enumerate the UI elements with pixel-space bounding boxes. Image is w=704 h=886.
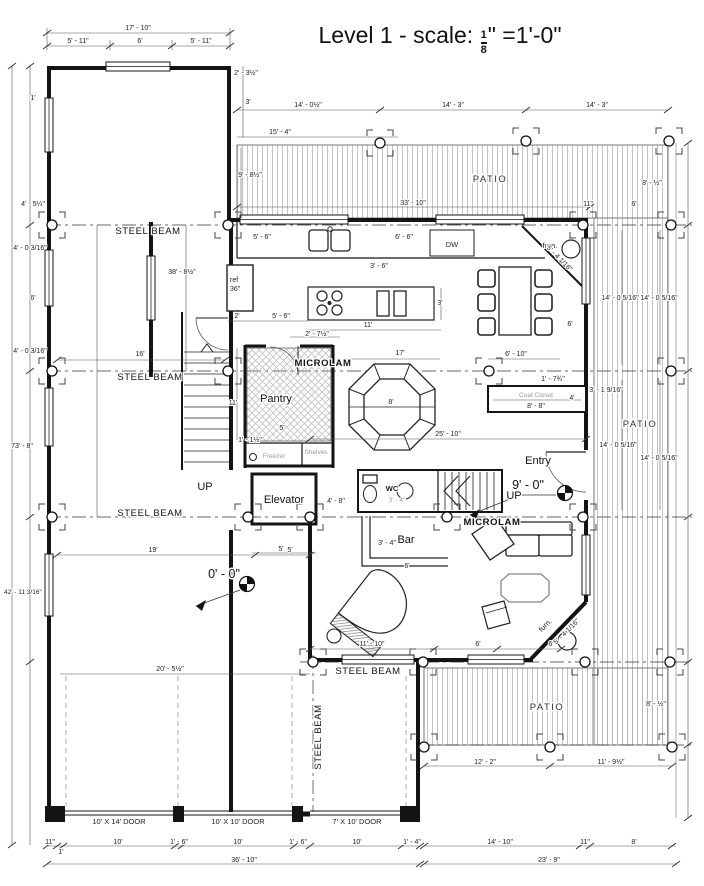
dim-label: 6'	[631, 201, 636, 208]
dim-label: 4' - 8"	[327, 498, 345, 505]
scale-fraction: 18	[481, 30, 487, 56]
spot-elevation-main-label: 0' - 0"	[208, 567, 240, 581]
leader-arrow	[196, 600, 206, 611]
toilet	[364, 486, 377, 503]
dim-label: 14' - 0 5/16"	[640, 295, 678, 302]
stair-door-swing	[196, 318, 228, 350]
kitchen	[227, 222, 545, 320]
dim-label: 14' - 0 5/16"	[640, 455, 678, 462]
stairs-left	[182, 312, 229, 470]
microlam-label-mid: MICROLAM	[463, 517, 520, 528]
island-cabinet	[377, 291, 389, 316]
dim-label: 14' - 3"	[442, 102, 464, 109]
room-label-wc: WC	[386, 484, 399, 493]
dim-label: 8' - 8"	[527, 403, 545, 410]
floor-plan-canvas: PATIO PATIO PATIO Pantry Freezer Shelves…	[0, 0, 704, 886]
island-cabinet	[394, 291, 406, 316]
steel-beam-label-4: STEEL BEAM	[335, 666, 400, 677]
dim-label: 16'	[135, 351, 144, 358]
dim-label: 42' - 11 3/16"	[4, 589, 42, 596]
dim-label: 4' - 5¼"	[21, 201, 45, 208]
faucet-icon	[328, 227, 332, 231]
dim-label: 9' - 8½"	[238, 171, 262, 179]
dim-label: 8' - ½"	[642, 179, 662, 187]
dim-label: 25' - 10"	[435, 431, 461, 438]
dim-label: 23' - 9"	[538, 857, 560, 864]
dim-label: 10'	[352, 839, 361, 846]
dim-label: 1'	[30, 95, 35, 102]
dim-label: 4'	[569, 395, 574, 402]
dim-label: 36' - 10"	[231, 857, 257, 864]
refrigerator-label-1: ref	[230, 277, 238, 284]
dim-label: 4' - 0 3/16"	[13, 245, 47, 252]
room-label-elevator: Elevator	[264, 494, 305, 506]
dim-label: 6'	[30, 295, 35, 302]
dim-label: 14' - 0½"	[294, 101, 322, 109]
dim-label: 1'	[58, 849, 63, 856]
fraction-numerator: 1	[481, 30, 487, 41]
dim-label: 11"	[45, 839, 55, 846]
octagon-game-table	[349, 364, 435, 450]
dim-label: 3'	[437, 300, 442, 307]
dim-label: 11"	[580, 839, 590, 846]
dim-label: 11'	[229, 400, 238, 407]
dim-label: 6'	[137, 38, 142, 45]
furnace-label-bottom: furn.	[537, 617, 554, 634]
room-label-patio-bottom: PATIO	[530, 702, 565, 713]
room-label-patio-top: PATIO	[473, 174, 508, 185]
dim-label: 11'	[364, 322, 373, 329]
drawing-title: Level 1 - scale: 18" =1'-0"	[170, 22, 704, 56]
dim-label: 1' - 7¾"	[541, 376, 565, 383]
dining-table	[499, 267, 531, 335]
dim-label: 3' - 4"	[389, 497, 406, 504]
kitchen-sink-left	[309, 230, 328, 251]
floor-plan-sheet: Level 1 - scale: 18" =1'-0"	[0, 0, 704, 886]
dim-label: 2'	[234, 313, 239, 320]
room-label-entry: Entry	[525, 455, 551, 467]
room-label-shelves: Shelves	[304, 449, 328, 456]
dim-label: 1' - 6"	[170, 839, 188, 846]
dim-label: 14' - 3"	[586, 102, 608, 109]
dim-label: 73' - 8"	[11, 443, 33, 450]
living-furniture	[327, 518, 576, 657]
dim-label: 6'	[567, 321, 572, 328]
garage-door-label-3: 7' X 10' DOOR	[332, 817, 382, 826]
dim-label: 33' - 10"	[400, 200, 426, 207]
dim-label: 15' - 4"	[269, 129, 291, 136]
dim-label: 14' - 0 5/16"	[601, 295, 639, 302]
furnace-top	[562, 240, 580, 258]
dim-label: 5' - 11"	[67, 38, 89, 45]
dim-label: 3' - 1 9/16"	[589, 387, 623, 394]
steel-beam-label-1: STEEL BEAM	[115, 226, 180, 237]
room-label-coat-closet: Coat Closet	[519, 392, 553, 399]
dim-label: 8' - ½"	[646, 700, 666, 708]
spot-elevation-entry-icon	[558, 486, 573, 501]
kitchen-sink-right	[331, 230, 350, 251]
dim-label: 17'	[395, 350, 404, 357]
dim-label: 14' - 10"	[487, 839, 513, 846]
room-label-freezer: Freezer	[263, 453, 286, 460]
dim-label: 5'	[279, 425, 284, 432]
dim-label: 6'	[475, 641, 480, 648]
garage-door-label-2: 10' X 10' DOOR	[211, 817, 265, 826]
coffee-table	[501, 574, 549, 602]
dim-label: 8'	[388, 399, 393, 406]
dim-label: 6' - 10"	[505, 351, 527, 358]
dim-label: 8'	[631, 839, 636, 846]
dishwasher-label: DW	[446, 240, 459, 249]
dim-label: 11' - 9½"	[597, 758, 625, 766]
dim-label: 5'	[278, 546, 283, 553]
title-suffix: " =1'-0"	[488, 22, 562, 48]
dim-label: 5'	[287, 547, 292, 554]
dim-label: 3' - 4"	[378, 540, 396, 547]
dim-label: 19'	[148, 547, 157, 554]
dim-label: 1' - 1½"	[238, 436, 262, 444]
accent-chair	[482, 601, 510, 629]
dim-label: 6'	[404, 563, 409, 570]
steel-beam-label-vertical: STEEL BEAM	[313, 704, 324, 769]
dim-label: 4' - 0 3/16"	[13, 348, 47, 355]
room-label-patio-right: PATIO	[623, 419, 658, 430]
dim-label: 12' - 2"	[474, 759, 496, 766]
toilet-tank	[363, 475, 377, 483]
dim-label: 11"	[583, 201, 593, 208]
dim-label: 2' - 7½"	[305, 330, 329, 338]
kitchen-island	[308, 287, 434, 320]
spot-elevation-entry-label: 9' - 0"	[512, 478, 544, 492]
dim-label: 14' - 0 5/16"	[599, 442, 637, 449]
spot-elevation-main-icon	[240, 577, 255, 592]
dim-label: 5' - 6"	[272, 313, 290, 320]
dim-label: 5' - 6"	[253, 234, 271, 241]
wc-stairs-strip	[358, 470, 502, 512]
dining-area	[478, 240, 580, 335]
freezer-compressor-icon	[250, 454, 257, 461]
steel-beam-label-3: STEEL BEAM	[117, 508, 182, 519]
dim-label: 11' - 10"	[359, 641, 385, 648]
title-prefix: Level 1 - scale:	[318, 22, 473, 48]
microlam-label-top: MICROLAM	[294, 358, 351, 369]
stairs-up-label-left: UP	[197, 481, 212, 493]
fraction-denominator: 8	[481, 45, 487, 56]
dim-label: 17' - 10"	[125, 25, 151, 32]
garage-door-label-1: 10' X 14' DOOR	[92, 817, 146, 826]
garage-door-tracks	[66, 676, 406, 806]
refrigerator-label-2: 36"	[230, 286, 241, 293]
dim-label: 2' - 3½"	[234, 69, 258, 77]
dim-label: 20' - 5½"	[156, 665, 184, 673]
room-label-pantry: Pantry	[260, 393, 292, 405]
dim-label: 6' - 6"	[395, 234, 413, 241]
dim-label: 38' - 8½"	[168, 268, 196, 276]
steel-beam-label-2: STEEL BEAM	[117, 372, 182, 383]
dim-label: 1' - 4"	[403, 839, 421, 846]
piano-stool	[327, 629, 341, 643]
dim-label: 10'	[113, 839, 122, 846]
dim-label: 10'	[233, 839, 242, 846]
dim-label: 1' - 6"	[289, 839, 307, 846]
dim-label: 3'	[245, 99, 250, 106]
dim-label: 3' - 6"	[370, 263, 388, 270]
room-label-bar: Bar	[397, 534, 414, 546]
